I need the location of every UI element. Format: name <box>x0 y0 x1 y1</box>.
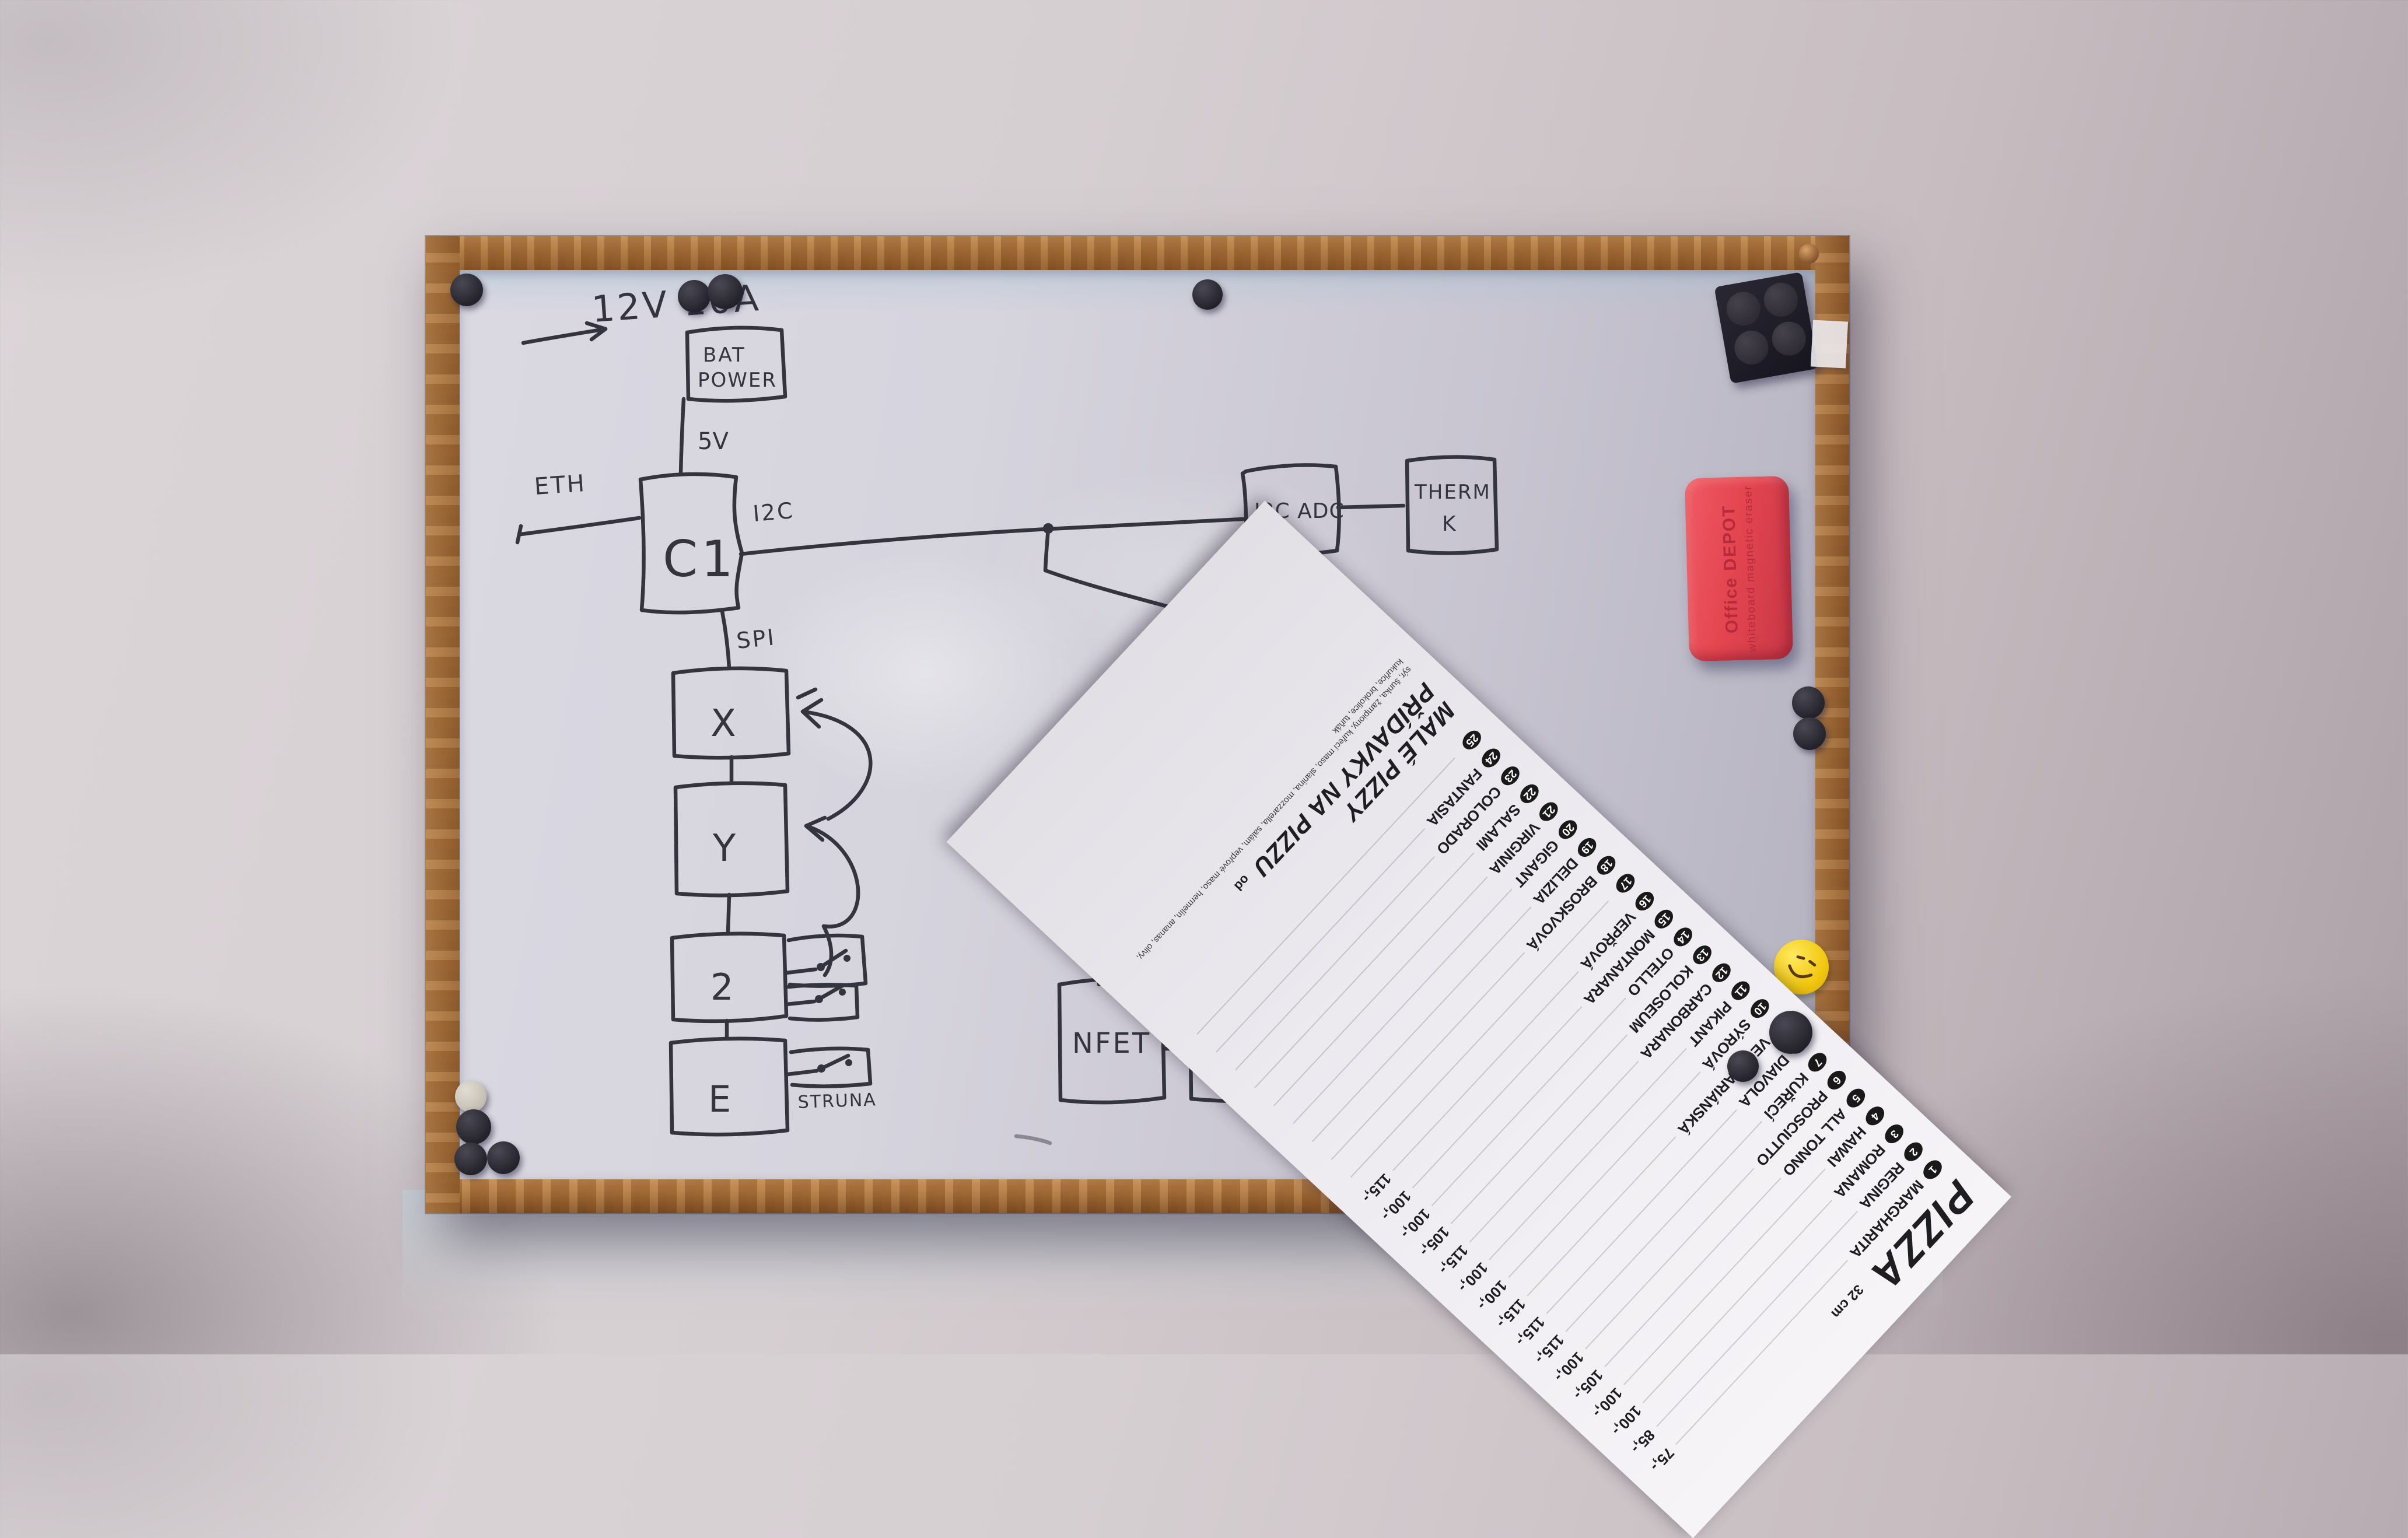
item-number: 15 <box>1651 906 1676 932</box>
magnet-on-menu-1 <box>1769 1011 1812 1054</box>
tray-magnet-4 <box>1769 319 1808 358</box>
tray-magnet-3 <box>1732 328 1771 367</box>
item-number: 4 <box>1862 1103 1888 1129</box>
magnet-top-left <box>450 274 483 306</box>
whiteboard-eraser: Office DEPOT whiteboard magnetic eraser <box>1685 476 1793 662</box>
menu-addons-note: od <box>1231 873 1253 894</box>
item-number: 14 <box>1670 924 1696 950</box>
tray-magnet-1 <box>1724 289 1763 328</box>
item-number: 20 <box>1555 817 1581 843</box>
item-number: 5 <box>1843 1085 1868 1111</box>
item-number: 13 <box>1689 942 1715 968</box>
item-number: 6 <box>1824 1067 1849 1094</box>
magnet-tray <box>1714 272 1819 384</box>
magnet-top-pair-1 <box>678 280 710 313</box>
item-number: 11 <box>1728 978 1753 1004</box>
tray-magnet-2 <box>1761 280 1800 319</box>
board-frame-left <box>426 236 460 1213</box>
magnet-right-2 <box>1793 717 1826 750</box>
item-number: 3 <box>1881 1121 1907 1147</box>
item-number: 23 <box>1497 763 1523 789</box>
tape-piece <box>1811 320 1848 368</box>
item-number: 24 <box>1478 745 1504 771</box>
board-frame-top <box>426 236 1849 270</box>
item-number: 21 <box>1536 798 1562 825</box>
frame-screw <box>1799 244 1819 264</box>
item-number: 19 <box>1574 835 1599 861</box>
eraser-brand-text: Office DEPOT <box>1719 505 1742 634</box>
item-number: 22 <box>1517 781 1542 807</box>
magnet-bottom-left-1 <box>456 1109 491 1144</box>
item-number: 12 <box>1709 959 1734 986</box>
item-number: 2 <box>1901 1138 1926 1165</box>
magnet-right-1 <box>1792 686 1825 719</box>
item-number: 17 <box>1612 870 1638 896</box>
magnet-bottom-left-3 <box>487 1141 520 1174</box>
item-number: 25 <box>1459 727 1485 753</box>
item-number: 16 <box>1632 888 1657 915</box>
magnet-bottom-left-2 <box>454 1143 487 1175</box>
magnet-bottom-left-white <box>455 1081 487 1112</box>
item-number: 7 <box>1804 1049 1830 1075</box>
eraser-subtitle-text: whiteboard magnetic eraser <box>1742 485 1759 652</box>
magnet-top-center <box>1192 279 1223 310</box>
item-number: 10 <box>1747 996 1773 1022</box>
magnet-top-pair-2 <box>708 274 743 309</box>
magnet-on-menu-2 <box>1727 1050 1759 1082</box>
item-number: 18 <box>1593 852 1619 878</box>
